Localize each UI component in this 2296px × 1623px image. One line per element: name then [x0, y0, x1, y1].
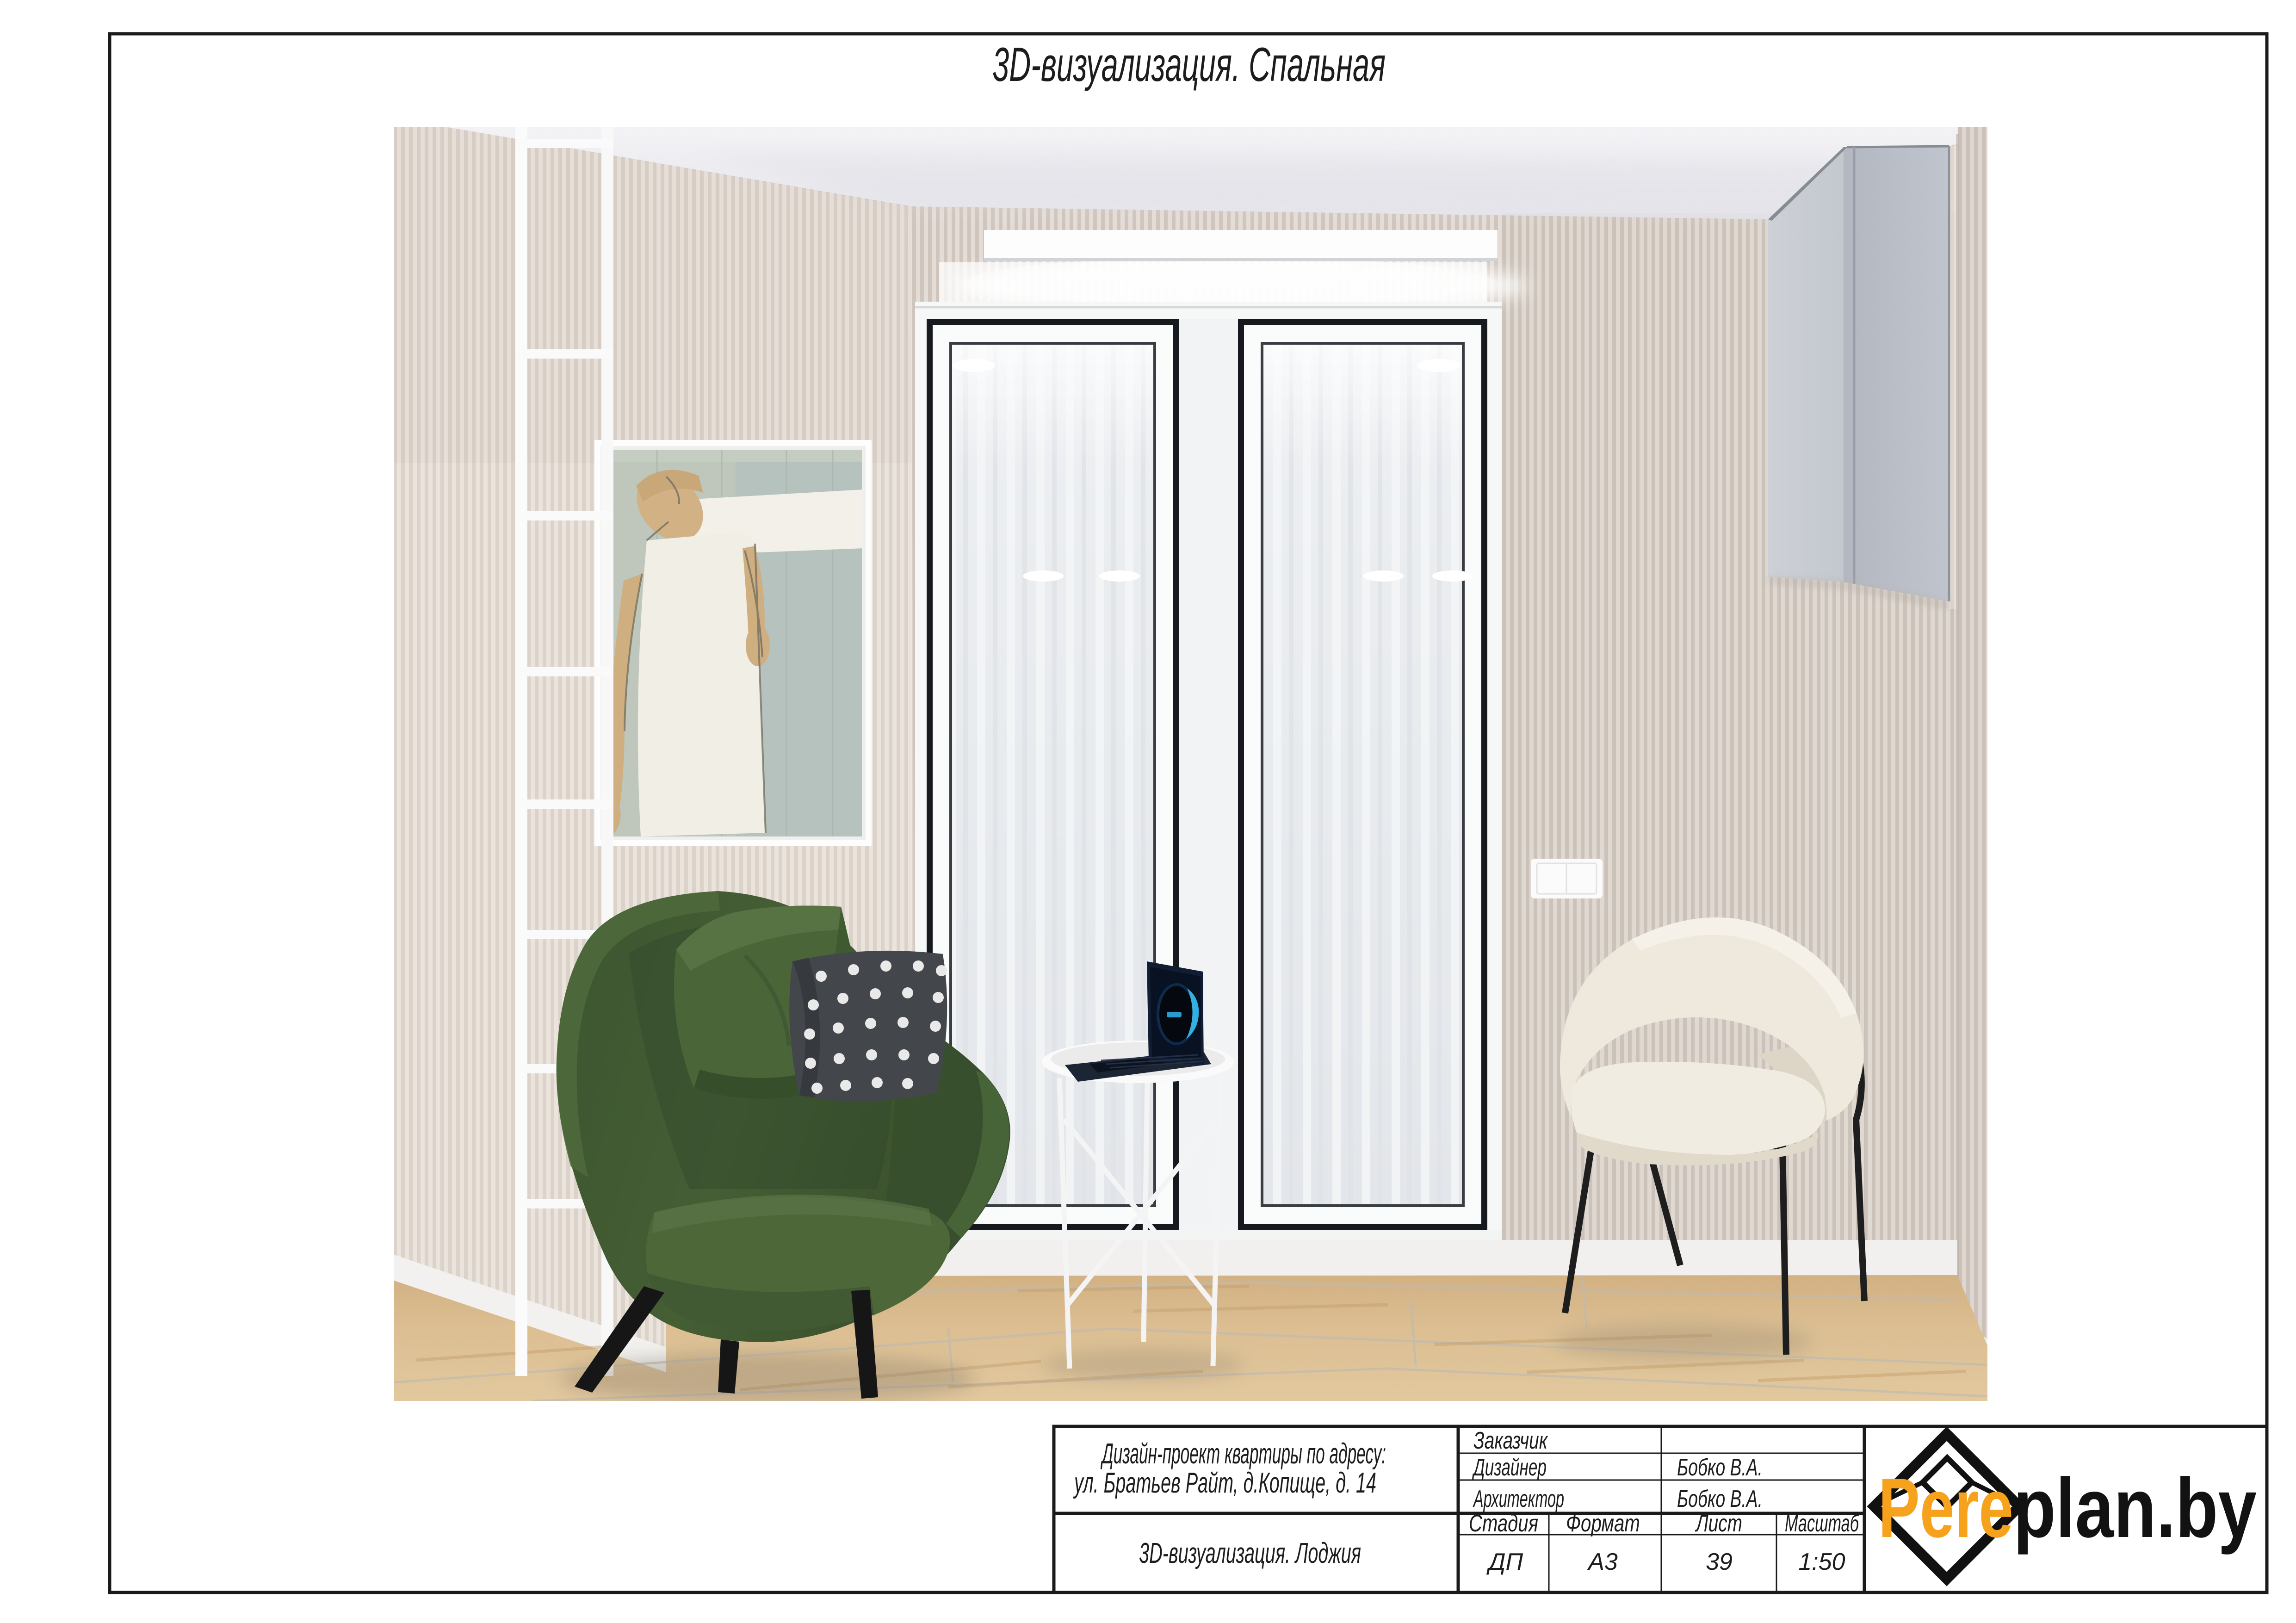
- svg-text:3D-визуализация. Лоджия: 3D-визуализация. Лоджия: [1139, 1537, 1361, 1569]
- svg-text:Лист: Лист: [1695, 1510, 1742, 1537]
- svg-text:Стадия: Стадия: [1469, 1510, 1538, 1537]
- svg-text:ул. Братьев Райт, д.Копище, д.: ул. Братьев Райт, д.Копище, д. 14: [1073, 1467, 1376, 1499]
- svg-text:Бобко В.А.: Бобко В.А.: [1677, 1454, 1763, 1481]
- svg-text:Бобко В.А.: Бобко В.А.: [1677, 1486, 1763, 1512]
- svg-text:Формат: Формат: [1566, 1510, 1640, 1537]
- svg-text:Заказчик: Заказчик: [1473, 1427, 1548, 1454]
- svg-text:1:50: 1:50: [1798, 1549, 1845, 1575]
- svg-text:Архитектор: Архитектор: [1473, 1486, 1564, 1512]
- svg-text:Масштаб: Масштаб: [1785, 1510, 1859, 1537]
- svg-text:plan.by: plan.by: [2013, 1461, 2257, 1555]
- svg-text:39: 39: [1706, 1549, 1733, 1575]
- svg-text:Pere: Pere: [1878, 1461, 2013, 1555]
- svg-text:3D-визуализация. Спальная: 3D-визуализация. Спальная: [992, 38, 1386, 92]
- svg-text:А3: А3: [1587, 1549, 1618, 1575]
- svg-text:Дизайнер: Дизайнер: [1472, 1454, 1547, 1481]
- svg-text:ДП: ДП: [1486, 1549, 1523, 1575]
- svg-text:Дизайн-проект квартиры по адре: Дизайн-проект квартиры по адресу:: [1101, 1438, 1386, 1470]
